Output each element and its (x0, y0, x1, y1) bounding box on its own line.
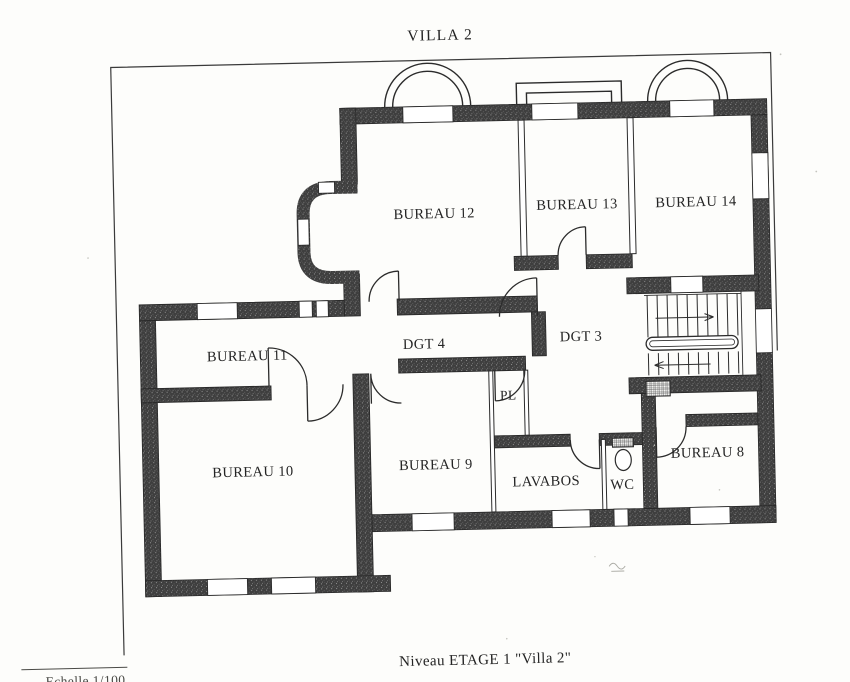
room-label-bureau-8: BUREAU 8 (671, 444, 745, 462)
stair-window (755, 309, 772, 353)
balcony-door (532, 103, 578, 120)
wall-dgt3-left (531, 312, 546, 356)
wall-bureau13-bottom-b (586, 254, 632, 269)
toilet-bowl (615, 449, 631, 470)
door-bureau9 (371, 373, 402, 404)
window (614, 509, 628, 526)
handwritten-mark (609, 563, 625, 571)
wall-b12-b13 (518, 120, 527, 256)
arched-bay-right (647, 60, 728, 102)
window (197, 303, 237, 320)
plan-title: VILLA 2 (407, 26, 473, 44)
wall-bureau10-right (353, 374, 374, 592)
wall-dgt4-bottom (398, 356, 525, 373)
scan-specks (83, 53, 828, 649)
plan-skew-group: VILLA 2 (7, 19, 829, 682)
wall-bureau12-dgt4 (397, 296, 537, 315)
bay-window (298, 219, 310, 245)
window (752, 153, 769, 199)
window (690, 507, 730, 525)
wall-wc-left (601, 439, 607, 509)
facade-arches (384, 57, 728, 108)
room-label-bureau-14: BUREAU 14 (655, 193, 737, 211)
room-label-bureau-11: BUREAU 11 (207, 348, 288, 366)
room-label-dgt-4: DGT 4 (403, 336, 446, 353)
room-label-dgt-3: DGT 3 (560, 328, 603, 345)
staircase (644, 291, 743, 377)
room-label-bureau-9: BUREAU 9 (399, 456, 473, 474)
wall-upperleft-a (340, 108, 358, 184)
window (207, 579, 247, 596)
window (412, 513, 454, 531)
door-wc (570, 440, 600, 470)
stair-handrail (646, 335, 738, 350)
stair-arrow-down (655, 360, 711, 368)
scale-label: Echelle 1/100 (45, 672, 125, 682)
wall-bureau13-bottom-a (514, 255, 558, 270)
window (670, 100, 714, 117)
window (316, 301, 328, 317)
arched-bay-left-inner (392, 71, 463, 108)
wall-bureau11-top (139, 300, 344, 321)
toilet-icon (612, 438, 634, 471)
window (299, 301, 312, 317)
room-label-wc: WC (610, 477, 635, 494)
window (552, 510, 590, 528)
arched-bay-left (384, 62, 471, 107)
stair-arrow-up (655, 313, 713, 321)
window (403, 106, 453, 123)
wall-pl-right (524, 370, 529, 435)
room-label-bureau-12: BUREAU 12 (393, 205, 475, 223)
door-bureau13 (557, 227, 586, 256)
wall-wc-right (641, 393, 658, 508)
room-label-lavabos: LAVABOS (512, 473, 580, 491)
bow-window-bay (303, 187, 360, 278)
scale-underline (21, 667, 127, 669)
room-label-pl: PL (500, 387, 517, 402)
wall-bureau11-bottom (141, 386, 271, 403)
wall-b13-b14 (627, 118, 636, 254)
window (271, 577, 315, 594)
wall-left-exterior (139, 321, 161, 597)
radiator-block (646, 381, 670, 397)
plan-caption: Niveau ETAGE 1 "Villa 2" (399, 650, 572, 670)
room-label-bureau-10: BUREAU 10 (212, 463, 294, 481)
wall-bureau10-bottom (145, 575, 390, 597)
floor-plan-svg: VILLA 2 (0, 0, 850, 682)
room-label-bureau-13: BUREAU 13 (536, 196, 618, 214)
bay-window (318, 182, 334, 193)
scanned-floor-plan-page: VILLA 2 (0, 0, 850, 682)
wall-lavabos-top (494, 434, 570, 448)
door-bureau10 (307, 384, 344, 421)
door-bureau12 (368, 271, 399, 302)
arched-bay-right-inner (655, 68, 720, 101)
wall-bureau8-top (686, 413, 758, 427)
door-gap (671, 276, 703, 293)
toilet-tank (612, 438, 633, 447)
